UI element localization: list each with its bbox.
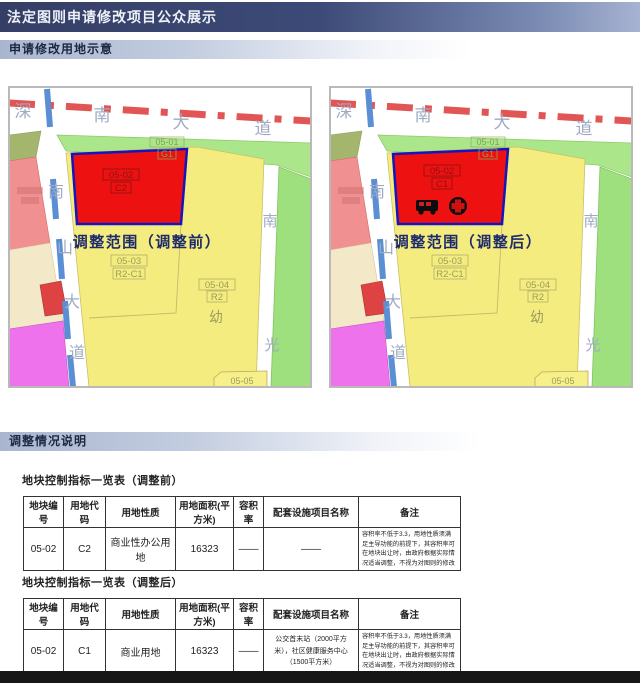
parcel-magenta: [330, 321, 390, 387]
col-header: 备注: [359, 599, 461, 630]
col-header: 容积率: [234, 599, 264, 630]
col-header: 用地性质: [106, 497, 176, 528]
redparcel-label-2: C2: [115, 183, 127, 194]
col-header: 用地性质: [106, 599, 176, 630]
label-05-04: 05-04: [205, 280, 229, 291]
road-top-char-4: 道: [576, 119, 593, 138]
cell-land-code: C2: [64, 528, 106, 571]
salmon-label-blur: [17, 187, 43, 194]
label-05-05: 05-05: [551, 376, 574, 386]
page-title: 法定图则申请修改项目公众展示: [0, 2, 640, 32]
col-header: 备注: [359, 497, 461, 528]
map-after-adjustment: 深 南 大 道 南 山 大 道 南 光 05-01 G1 05-03 R2-C1…: [329, 86, 633, 388]
label-r2: R2: [211, 292, 223, 303]
col-header: 容积率: [234, 497, 264, 528]
cell-remark: 容积率不低于3.3，用地性质须满足主导功能的前提下，其容积率可在地块出让时，由政…: [359, 630, 461, 673]
table-before-title: 地块控制指标一览表（调整前）: [22, 472, 183, 488]
road-right-char-2: 光: [264, 337, 279, 354]
label-r2: R2: [532, 292, 544, 303]
road-right-char-1: 南: [583, 213, 598, 230]
cell-land-use: 商业性办公用地: [106, 528, 176, 571]
table-after-title: 地块控制指标一览表（调整后）: [22, 574, 183, 590]
table-header-row: 地块编号 用地代码 用地性质 用地面积(平方米) 容积率 配套设施项目名称 备注: [24, 599, 461, 630]
label-05-04: 05-04: [526, 280, 550, 291]
table-row: 05-02 C2 商业性办公用地 16323 —— —— 容积率不低于3.3，用…: [24, 528, 461, 571]
table-after: 地块编号 用地代码 用地性质 用地面积(平方米) 容积率 配套设施项目名称 备注…: [23, 598, 461, 673]
road-left-char-1: 南: [369, 183, 385, 201]
road-left-char-2: 山: [57, 239, 73, 257]
road-left-char-1: 南: [48, 183, 64, 201]
col-header: 用地面积(平方米): [176, 599, 234, 630]
salmon-label-blur2: [342, 197, 360, 204]
label-05-01: 05-01: [155, 137, 178, 147]
road-blue-dash-1: [368, 89, 371, 127]
label-05-01: 05-01: [476, 137, 499, 147]
cell-parcel-no: 05-02: [24, 528, 64, 571]
col-header: 地块编号: [24, 599, 64, 630]
parcel-red-05-02: [393, 149, 508, 224]
map-caption-before: 调整范围（调整前）: [73, 233, 222, 251]
label-g1: G1: [482, 149, 494, 159]
table-row: 05-02 C1 商业用地 16323 —— 公交首末站（2000平方米），社区…: [24, 630, 461, 673]
redparcel-label-1: 05-02: [109, 170, 133, 181]
road-top-char-3: 大: [173, 113, 190, 132]
col-header: 配套设施项目名称: [264, 599, 359, 630]
road-left-char-4: 道: [69, 344, 85, 362]
road-blue-dash-1: [47, 89, 50, 127]
road-top-char-4: 道: [255, 119, 272, 138]
label-05-03: 05-03: [117, 256, 141, 267]
road-left-char-3: 大: [385, 293, 401, 311]
redparcel-label-1: 05-02: [430, 166, 454, 177]
section-header-land-use: 申请修改用地示意: [0, 40, 470, 59]
cell-facilities: 公交首末站（2000平方米），社区健康服务中心（1500平方米）: [264, 630, 359, 673]
parcel-magenta: [9, 321, 69, 387]
road-top-char-2: 南: [415, 106, 432, 125]
redparcel-label-2: C1: [436, 179, 448, 190]
label-r2c1: R2-C1: [115, 269, 142, 280]
road-top-char-2: 南: [94, 106, 111, 125]
cell-land-area: 16323: [176, 528, 234, 571]
map-caption-after: 调整范围（调整后）: [394, 233, 543, 251]
footer-bar: [0, 671, 640, 683]
map-after-svg: 深 南 大 道 南 山 大 道 南 光 05-01 G1 05-03 R2-C1…: [330, 87, 632, 387]
road-left-char-3: 大: [64, 293, 80, 311]
col-header: 用地面积(平方米): [176, 497, 234, 528]
table-before: 地块编号 用地代码 用地性质 用地面积(平方米) 容积率 配套设施项目名称 备注…: [23, 496, 461, 571]
cell-land-area: 16323: [176, 630, 234, 673]
parcel-red-05-02: [72, 149, 187, 224]
parcel-olive: [330, 131, 362, 161]
cell-far: ——: [234, 528, 264, 571]
salmon-label-blur2: [21, 197, 39, 204]
road-top-char-1: 深: [15, 102, 32, 121]
label-r2c1: R2-C1: [436, 269, 463, 280]
section-header-adjustment: 调整情况说明: [0, 432, 480, 451]
road-right-char-2: 光: [585, 337, 600, 354]
table-header-row: 地块编号 用地代码 用地性质 用地面积(平方米) 容积率 配套设施项目名称 备注: [24, 497, 461, 528]
cell-land-code: C1: [64, 630, 106, 673]
road-top-char-3: 大: [494, 113, 511, 132]
label-05-05: 05-05: [230, 376, 253, 386]
road-left-char-2: 山: [378, 239, 394, 257]
road-right-char-1: 南: [262, 213, 277, 230]
label-05-03: 05-03: [438, 256, 462, 267]
col-header: 配套设施项目名称: [264, 497, 359, 528]
road-top-char-1: 深: [336, 102, 353, 121]
map-before-adjustment: 深 南 大 道 南 山 大 道 南 光 05-01 G1 05-03 R2-C1…: [8, 86, 312, 388]
cell-facilities: ——: [264, 528, 359, 571]
cell-parcel-no: 05-02: [24, 630, 64, 673]
label-kindergarten: 幼: [209, 309, 223, 325]
col-header: 地块编号: [24, 497, 64, 528]
salmon-label-blur: [338, 187, 364, 194]
parcel-olive: [9, 131, 41, 161]
road-left-char-4: 道: [390, 344, 406, 362]
col-header: 用地代码: [64, 497, 106, 528]
label-g1: G1: [161, 149, 173, 159]
cell-remark: 容积率不低于3.3，用地性质须满足主导功能的前提下，其容积率可在地块出让时，由政…: [359, 528, 461, 571]
label-kindergarten: 幼: [530, 309, 544, 325]
col-header: 用地代码: [64, 599, 106, 630]
cell-land-use: 商业用地: [106, 630, 176, 673]
map-before-svg: 深 南 大 道 南 山 大 道 南 光 05-01 G1 05-03 R2-C1…: [9, 87, 311, 387]
cell-far: ——: [234, 630, 264, 673]
health-cross-icon: [449, 197, 467, 215]
